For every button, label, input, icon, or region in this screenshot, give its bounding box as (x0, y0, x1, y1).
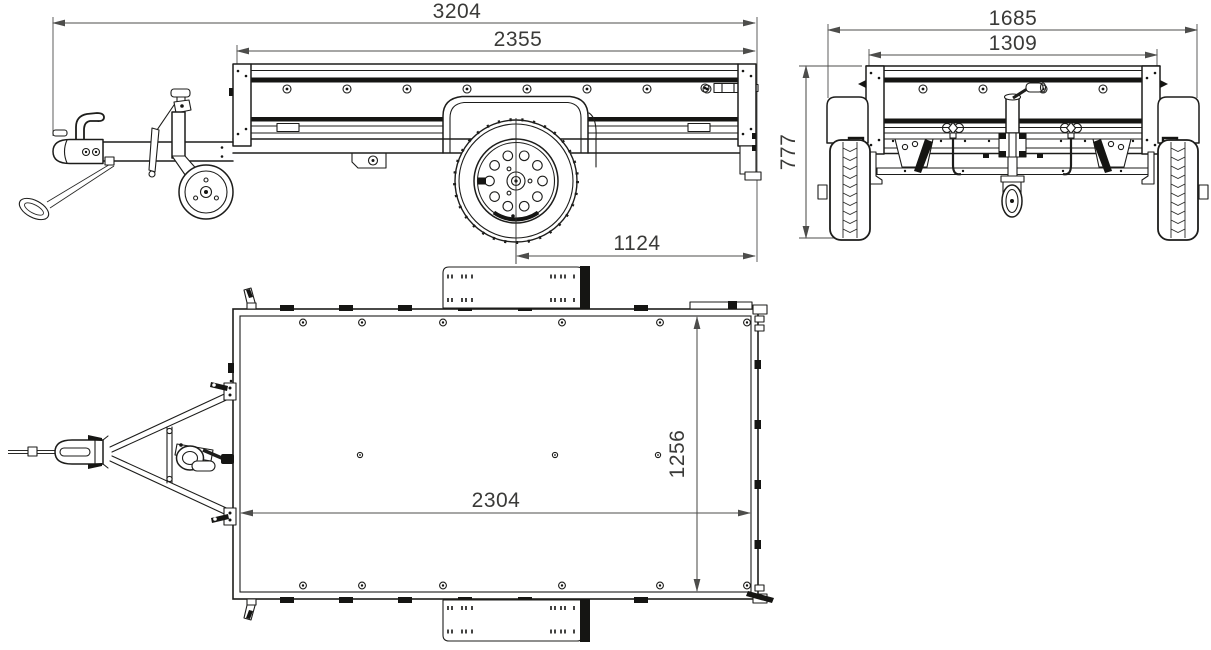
dim-box-outer-width: 1309 (869, 32, 1157, 55)
top-view: 2304 1256 (8, 266, 774, 642)
dim-overall-width: 1685 (828, 7, 1197, 30)
corner-latch-bottom-left (244, 599, 256, 620)
drawbar-top (110, 382, 236, 525)
left-edge-fitting (228, 363, 234, 373)
dim-overall-length: 3204 (53, 0, 755, 23)
dim-overall-length-label: 3204 (433, 0, 482, 23)
dim-axle-to-rear: 1124 (517, 232, 755, 256)
coupler-handle (76, 113, 104, 139)
box-front-post (229, 64, 251, 146)
drawing-canvas: 3204 2355 (0, 0, 1211, 650)
dim-box-outer-length: 2355 (237, 28, 755, 51)
jockey-wheel-top (175, 443, 234, 471)
fender-plate-lower (443, 599, 590, 642)
dim-inner-width-label: 1256 (666, 430, 689, 479)
tyre-left-front (818, 140, 870, 240)
safety-cable-top (8, 447, 55, 456)
dim-box-outer-length-label: 2355 (494, 28, 543, 51)
front-view: 1685 1309 777 (777, 7, 1208, 240)
fender-plate-upper (443, 266, 590, 309)
front-panel-rivets (919, 85, 1107, 93)
dim-axle-to-rear-label: 1124 (613, 232, 660, 255)
dim-overall-height-label: 777 (777, 134, 800, 171)
dim-overall-width-label: 1685 (989, 7, 1038, 30)
corner-latch-top-left (244, 288, 256, 309)
tyre-right-front (1158, 140, 1208, 240)
jockey-wheel-front (999, 83, 1046, 217)
trailer-technical-drawing: 3204 2355 (0, 0, 1211, 650)
dim-inner-length-label: 2304 (472, 489, 521, 512)
box-rear-post (738, 64, 761, 180)
dim-box-outer-width-label: 1309 (989, 32, 1038, 55)
jockey-wheel-side (149, 89, 233, 219)
coupler-side (53, 113, 104, 164)
dim-overall-height: 777 (777, 66, 806, 238)
side-panel-rivets (283, 85, 711, 93)
coupler-top (55, 435, 108, 469)
drawbar-side (103, 142, 233, 161)
road-wheel-side (455, 118, 578, 264)
side-view: 3204 2355 (16, 0, 761, 264)
safety-cable-side (16, 157, 114, 224)
